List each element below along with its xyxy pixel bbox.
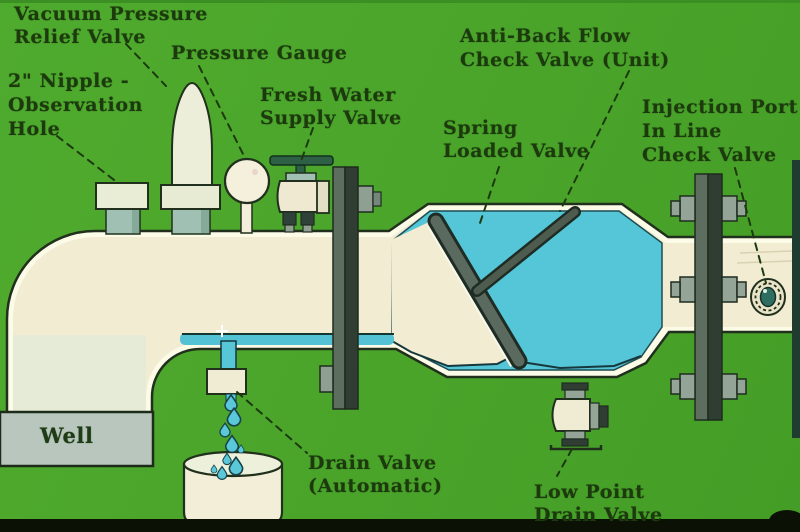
label-line: Anti-Back Flow	[460, 24, 670, 48]
valve-body	[278, 181, 323, 212]
elbow-downleg-shading	[13, 335, 146, 413]
gauge-stem	[241, 201, 252, 233]
flange-right	[671, 174, 746, 420]
label-nipple-observation-hole: 2" Nipple - Observation Hole	[8, 69, 143, 141]
label-line: Observation	[8, 93, 143, 117]
label-fresh-water-supply-valve: Fresh Water Supply Valve	[260, 84, 402, 130]
label-line: Vacuum Pressure	[14, 3, 208, 26]
flange-left-bar1	[333, 167, 345, 409]
slide-diagram: Vacuum Pressure Relief Valve Pressure Ga…	[0, 0, 800, 532]
label-injection-port: Injection Port - In Line Check Valve	[642, 95, 800, 167]
nipple-cap	[96, 183, 148, 209]
gauge-glint	[252, 169, 258, 175]
film-bottom-edge	[0, 519, 800, 532]
lp-top-flange	[562, 383, 588, 390]
lp-bottom-flange	[562, 439, 588, 446]
leader-drain-auto	[237, 392, 307, 453]
low-point-drain-valve	[551, 383, 608, 449]
gauge-dial	[225, 159, 269, 203]
check-valve-chamber	[391, 211, 662, 370]
label-line: Fresh Water	[260, 84, 402, 107]
flange-right-bar2	[708, 174, 722, 420]
label-well: Well	[40, 424, 94, 447]
label-low-point-drain-valve: Low Point Drain Valve	[534, 481, 663, 527]
pipe-water-stream	[180, 333, 394, 345]
label-line: Check Valve (Unit)	[460, 48, 670, 72]
lp-right-neck	[590, 403, 599, 429]
valve-feet	[283, 212, 314, 232]
port-opening	[761, 288, 776, 307]
flange-left-bolt-bottom	[320, 366, 333, 392]
label-line: (Automatic)	[308, 475, 443, 498]
lp-body	[553, 399, 591, 431]
film-right-edge	[792, 160, 800, 438]
label-line: Drain Valve	[308, 452, 443, 475]
label-line: Well	[40, 424, 94, 447]
vrv-stub-shade	[201, 210, 209, 233]
vacuum-relief-valve	[161, 83, 220, 234]
injection-port	[751, 279, 785, 315]
leader-nipple	[57, 136, 118, 183]
label-line: Injection Port -	[642, 95, 800, 119]
label-line: In Line	[642, 119, 800, 143]
vrv-collar	[161, 185, 220, 209]
label-line: Spring	[443, 117, 589, 140]
vrv-body	[172, 83, 212, 185]
label-line: Hole	[8, 117, 143, 141]
valve-outlet-flange	[317, 181, 329, 213]
port-glint	[763, 289, 767, 293]
pressure-gauge	[225, 159, 269, 233]
fresh-water-supply-valve	[270, 156, 333, 232]
label-line: Pressure Gauge	[171, 42, 347, 65]
label-spring-loaded-valve: Spring Loaded Valve	[443, 117, 589, 163]
flange-left-bar2	[345, 167, 358, 409]
label-anti-backflow-check-valve: Anti-Back Flow Check Valve (Unit)	[460, 24, 670, 72]
nipple-stub-shade	[132, 210, 139, 233]
label-drain-valve-automatic: Drain Valve (Automatic)	[308, 452, 443, 498]
label-line: Low Point	[534, 481, 663, 504]
lp-top-neck	[565, 390, 585, 399]
lp-bottom-neck	[565, 431, 585, 439]
leader-low-point	[557, 449, 572, 476]
flange-left-bolt-top	[358, 186, 373, 212]
valve-bonnet	[286, 173, 316, 181]
label-line: Check Valve	[642, 143, 800, 167]
lp-right-flange	[599, 406, 608, 427]
label-line: Supply Valve	[260, 107, 402, 130]
nipple-observation-hole	[96, 183, 148, 234]
label-line: Loaded Valve	[443, 140, 589, 163]
label-line: 2" Nipple -	[8, 69, 143, 93]
drain-valve-body	[207, 369, 246, 394]
label-line: Drain Valve	[534, 504, 663, 527]
flange-right-bar1	[695, 174, 708, 420]
flange-left-bolt-top-nub	[373, 192, 381, 206]
label-pressure-gauge: Pressure Gauge	[171, 42, 347, 65]
